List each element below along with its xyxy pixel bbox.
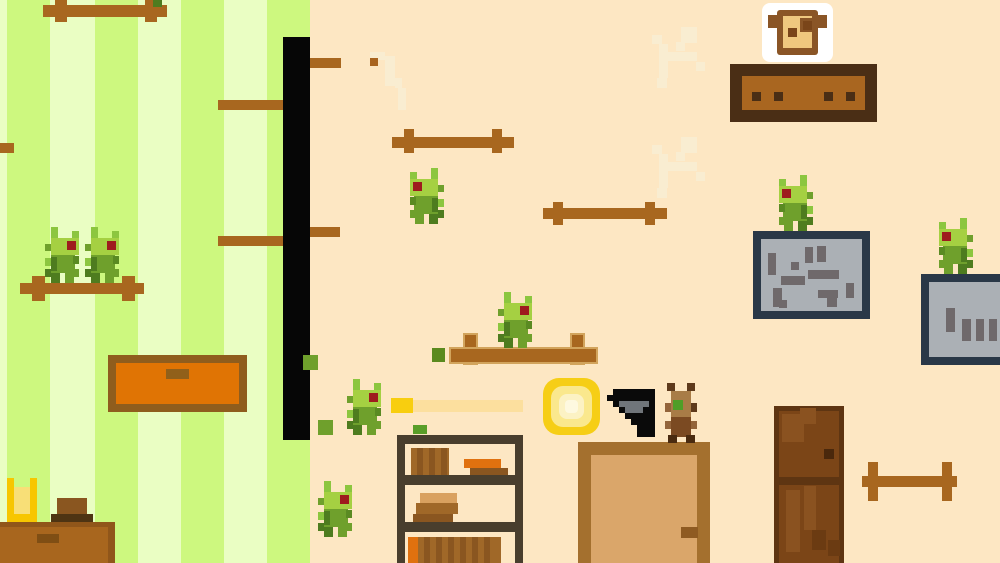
- hopper-foot: [944, 264, 953, 274]
- rail-platform: [862, 476, 957, 487]
- ant-part: [668, 435, 677, 443]
- drawer-handle: [166, 369, 189, 379]
- hopper-foot: [958, 264, 967, 274]
- pole-left-platform: [218, 100, 283, 110]
- rail-platform: [20, 283, 144, 294]
- hopper-foot: [415, 214, 424, 224]
- hopper-antenna: [91, 227, 98, 234]
- hopper-bug: [497, 292, 532, 348]
- ant-part: [667, 383, 675, 391]
- door-divider: [774, 477, 844, 485]
- hopper-bug: [84, 227, 119, 283]
- wallpaper-stripe: [181, 0, 224, 563]
- beam-trail: [413, 400, 523, 412]
- wall-crack: [650, 26, 710, 91]
- hopper-leg: [807, 206, 813, 214]
- door-handle: [681, 527, 698, 538]
- hopper-leg: [375, 408, 381, 416]
- ant-part: [673, 400, 683, 410]
- stone-mark: [779, 300, 787, 308]
- hopper-antenna: [939, 222, 946, 229]
- hopper-foot: [429, 214, 438, 224]
- hopper-jaw: [318, 498, 324, 505]
- rail-platform: [449, 347, 598, 364]
- hopper-foot: [784, 221, 793, 231]
- ant-part: [691, 403, 697, 412]
- stone-mark: [976, 319, 984, 341]
- green-chip: [303, 355, 318, 370]
- hopper-bug: [939, 218, 974, 274]
- stone-mark: [768, 253, 776, 275]
- rail-platform: [392, 137, 514, 148]
- door-wood-patch: [812, 530, 826, 550]
- hopper-foot: [338, 527, 347, 537]
- wall-stub-platform: [0, 143, 14, 153]
- hopper-eye: [107, 241, 116, 250]
- hopper-antenna: [112, 231, 119, 238]
- hopper-leg: [318, 512, 324, 520]
- hopper-bug: [346, 379, 381, 435]
- pistol-pixel: [649, 431, 655, 437]
- hopper-antenna: [504, 292, 511, 299]
- crack-pixel: [676, 152, 685, 161]
- hopper-leg: [85, 258, 91, 266]
- hopper-eye: [340, 495, 349, 504]
- hopper-jaw: [967, 235, 973, 242]
- hopper-leg: [45, 258, 51, 266]
- green-chip: [413, 425, 427, 434]
- hopper-leg: [438, 199, 444, 207]
- book: [472, 537, 478, 563]
- toaster-inner: [14, 487, 30, 514]
- hopper-eye: [67, 241, 76, 250]
- toast-part: [803, 21, 812, 30]
- pole-right-platform: [310, 58, 341, 68]
- stone-mark: [781, 276, 805, 285]
- hopper-leg: [73, 256, 79, 264]
- ant-bug: [665, 383, 697, 443]
- toast-part: [788, 28, 797, 37]
- crack-pixel: [659, 52, 668, 78]
- hopper-bug: [779, 175, 814, 231]
- crack-pixel: [676, 42, 685, 51]
- hopper-leg: [779, 204, 785, 212]
- book: [424, 537, 430, 563]
- green-chip: [432, 348, 445, 362]
- crack-pixel: [696, 172, 705, 181]
- stone-mark: [846, 283, 854, 298]
- crack-pixel: [657, 188, 667, 198]
- hopper-body-shade: [51, 257, 57, 271]
- crack-pixel: [664, 162, 697, 171]
- crack-pixel: [664, 52, 697, 61]
- shelf-dot: [846, 92, 855, 101]
- book: [448, 537, 454, 563]
- hopper-antenna: [72, 231, 79, 238]
- pistol: [607, 389, 661, 437]
- hopper-leg: [347, 410, 353, 418]
- side-table-shade: [108, 527, 115, 563]
- green-chip: [153, 0, 162, 7]
- toast-pickup: [762, 3, 833, 62]
- hopper-eye: [520, 306, 529, 315]
- stone-mark: [808, 270, 839, 279]
- ant-part: [671, 417, 691, 437]
- ant-part: [686, 435, 695, 443]
- hopper-leg: [807, 217, 813, 225]
- crack-pixel: [696, 62, 705, 71]
- crack-pixel: [395, 78, 402, 88]
- hopper-body-shade: [504, 322, 510, 336]
- crack-pixel: [657, 78, 667, 88]
- hopper-eye: [369, 393, 378, 402]
- toast-part: [768, 15, 777, 28]
- hopper-leg: [346, 510, 352, 518]
- hopper-foot: [324, 527, 333, 537]
- ant-part: [665, 403, 671, 412]
- book: [484, 537, 490, 563]
- hopper-antenna: [324, 481, 331, 488]
- hopper-body-shade: [353, 409, 359, 423]
- hopper-bug: [317, 481, 352, 537]
- shelf-dot: [752, 92, 761, 101]
- stone-mark: [946, 308, 955, 332]
- box-base: [51, 514, 93, 522]
- crack-pixel: [652, 35, 662, 44]
- green-chip: [318, 420, 333, 435]
- ant-part: [665, 421, 671, 429]
- beam-head: [391, 398, 413, 413]
- hopper-body-shade: [91, 257, 97, 271]
- shelf-dot: [774, 92, 783, 101]
- hopper-antenna: [800, 175, 807, 182]
- wall-crack: [370, 48, 430, 113]
- hopper-antenna: [374, 383, 381, 390]
- stone-mark: [817, 246, 826, 262]
- book: [408, 537, 418, 563]
- ant-part: [687, 383, 695, 391]
- stone-mark: [827, 296, 837, 307]
- bookshelf-shelf: [397, 475, 523, 485]
- crack-pixel: [385, 56, 395, 86]
- hopper-antenna: [431, 168, 438, 175]
- book: [413, 514, 453, 522]
- bookshelf-top: [397, 435, 523, 444]
- crack-pixel: [681, 137, 697, 153]
- hopper-leg: [438, 210, 444, 218]
- hopper-foot: [105, 273, 114, 283]
- hopper-jaw: [807, 192, 813, 199]
- hopper-foot: [51, 273, 60, 283]
- hopper-bug: [410, 168, 445, 224]
- hopper-leg: [939, 247, 945, 255]
- book: [441, 448, 447, 475]
- door-wood-patch: [828, 540, 840, 556]
- bookshelf-side: [397, 435, 405, 563]
- hopper-leg: [498, 323, 504, 331]
- hopper-antenna: [779, 179, 786, 186]
- hopper-leg: [967, 260, 973, 268]
- hopper-antenna: [525, 296, 532, 303]
- stone-mark: [962, 319, 971, 341]
- door-handle: [824, 449, 834, 459]
- wooden-box: [57, 498, 87, 514]
- pole-right-platform: [310, 227, 340, 237]
- stone-mark: [805, 247, 813, 263]
- crack-pixel: [652, 145, 662, 154]
- hopper-antenna: [410, 172, 417, 179]
- book: [436, 537, 442, 563]
- side-table-edge: [0, 522, 115, 527]
- game-viewport[interactable]: [0, 0, 1000, 563]
- hopper-leg: [526, 321, 532, 329]
- stone-mark: [989, 319, 997, 341]
- hopper-foot: [367, 425, 376, 435]
- book: [429, 448, 435, 475]
- hopper-jaw: [85, 244, 91, 251]
- book: [417, 448, 423, 475]
- hopper-leg: [967, 249, 973, 257]
- hopper-jaw: [45, 244, 51, 251]
- crack-pixel: [398, 88, 406, 110]
- hopper-body-shade: [324, 511, 330, 525]
- door-wood-patch: [804, 486, 816, 530]
- hopper-foot: [518, 338, 527, 348]
- wall-crack: [650, 136, 710, 201]
- hopper-antenna: [345, 485, 352, 492]
- hopper-bug: [44, 227, 79, 283]
- hopper-jaw: [347, 396, 353, 403]
- rail-platform: [43, 5, 167, 17]
- toaster-bottom: [7, 514, 37, 522]
- hopper-leg: [410, 197, 416, 205]
- hopper-jaw: [438, 185, 444, 192]
- shelf-dot: [824, 92, 833, 101]
- hopper-foot: [504, 338, 513, 348]
- hopper-leg: [113, 256, 119, 264]
- stone-mark: [791, 262, 799, 270]
- hopper-foot: [353, 425, 362, 435]
- book: [464, 459, 501, 468]
- toast-part: [818, 15, 827, 28]
- bookshelf-side: [515, 435, 523, 563]
- hopper-antenna: [51, 227, 58, 234]
- side-table-handle: [37, 534, 59, 543]
- wood-chip: [370, 58, 378, 66]
- door-wood-patch: [786, 490, 800, 552]
- book: [460, 537, 466, 563]
- black-pole: [283, 37, 310, 440]
- door-panel: [591, 455, 697, 563]
- hopper-antenna: [353, 379, 360, 386]
- ring-layer: [565, 400, 578, 413]
- hopper-jaw: [498, 309, 504, 316]
- crack-pixel: [659, 162, 668, 188]
- hopper-foot: [798, 221, 807, 231]
- hopper-antenna: [960, 218, 967, 225]
- hopper-eye: [942, 232, 951, 241]
- hopper-foot: [91, 273, 100, 283]
- rail-platform: [543, 208, 667, 219]
- pole-left-platform: [218, 236, 283, 246]
- crack-pixel: [681, 27, 697, 43]
- bookshelf-shelf: [397, 522, 523, 532]
- hopper-eye: [413, 182, 422, 191]
- book: [420, 493, 457, 503]
- hopper-eye: [782, 189, 791, 198]
- door-wood-patch: [800, 408, 816, 424]
- hopper-foot: [65, 273, 74, 283]
- ant-part: [691, 421, 697, 429]
- book: [416, 503, 458, 514]
